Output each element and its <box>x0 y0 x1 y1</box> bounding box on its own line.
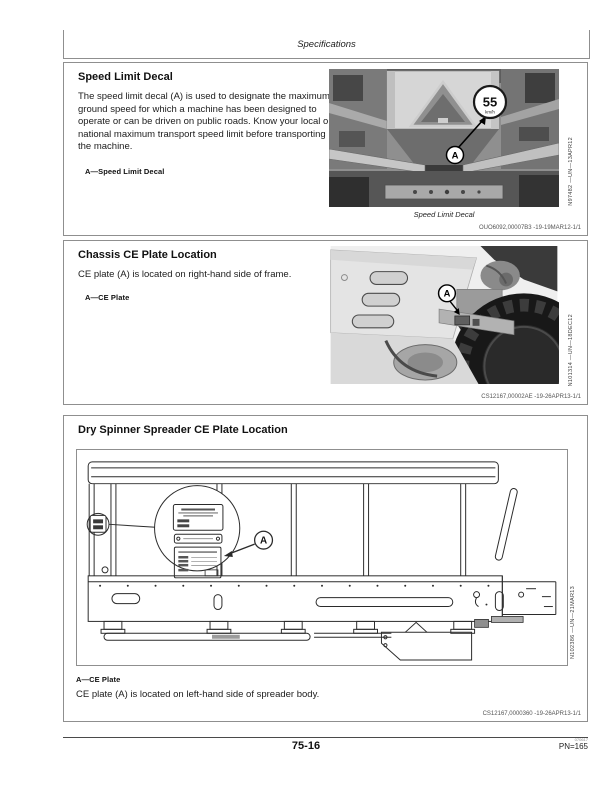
callout-a-label: A <box>260 536 267 547</box>
speed-decal-value: 55 <box>483 95 497 110</box>
speed-limit-photo-graphic: 55 km/h A <box>329 69 559 207</box>
section-title: Chassis CE Plate Location <box>78 249 217 261</box>
speed-decal: 55 km/h <box>474 86 506 118</box>
section-body: CE plate (A) is located on right-hand si… <box>78 269 340 282</box>
figure-id-code: N101314 —UN—18DEC12 <box>568 314 574 386</box>
footer-rule <box>63 737 588 738</box>
section-speed-limit-decal: Speed Limit Decal The speed limit decal … <box>63 62 588 236</box>
pn-block: 070617 PN=165 <box>559 738 588 751</box>
callout-legend: A—CE Plate <box>85 293 129 302</box>
ref-code: CS12167,00002AE -19-26APR13-1/1 <box>481 394 581 400</box>
pn-label: PN=165 <box>559 742 588 751</box>
manual-page: Specifications Speed Limit Decal The spe… <box>0 0 612 792</box>
callout-a-marker: A <box>439 285 456 302</box>
figure-chassis-photo: A <box>329 246 559 384</box>
callout-a-label: A <box>444 289 451 299</box>
ce-plate <box>455 316 470 325</box>
page-header-title: Specifications <box>297 39 356 50</box>
spreader-line-drawing: A <box>77 450 567 665</box>
section-title: Speed Limit Decal <box>78 71 173 83</box>
section-body: The speed limit decal (A) is used to des… <box>78 91 340 154</box>
figure-caption: Speed Limit Decal <box>329 210 559 219</box>
figure-spreader-drawing: A <box>76 449 568 666</box>
section-chassis-ce-plate: Chassis CE Plate Location CE plate (A) i… <box>63 240 588 405</box>
ref-code: OUO6092,00007B3 -19-19MAR12-1/1 <box>479 225 581 231</box>
section-body: CE plate (A) is located on left-hand sid… <box>76 689 556 702</box>
section-spreader-ce-plate: Dry Spinner Spreader CE Plate Location <box>63 415 588 722</box>
callout-legend: A—Speed Limit Decal <box>85 167 164 176</box>
page-number: 75-16 <box>0 740 612 752</box>
chassis-photo-graphic: A <box>329 246 559 384</box>
callout-a-label: A <box>452 151 459 162</box>
callout-legend: A—CE Plate <box>76 675 120 684</box>
speed-decal-unit: km/h <box>485 110 495 115</box>
page-header: Specifications <box>63 30 590 59</box>
section-title: Dry Spinner Spreader CE Plate Location <box>78 424 288 436</box>
callout-a-marker: A <box>255 531 273 549</box>
callout-a-marker: A <box>447 147 464 164</box>
figure-id-code: N97482 —UN—13APR12 <box>568 137 574 206</box>
figure-id-code: N102386 —UN—21MAR13 <box>570 586 576 659</box>
figure-speed-limit-photo: 55 km/h A <box>329 69 559 207</box>
ref-code: CS12167,0000360 -19-26APR13-1/1 <box>483 711 581 717</box>
